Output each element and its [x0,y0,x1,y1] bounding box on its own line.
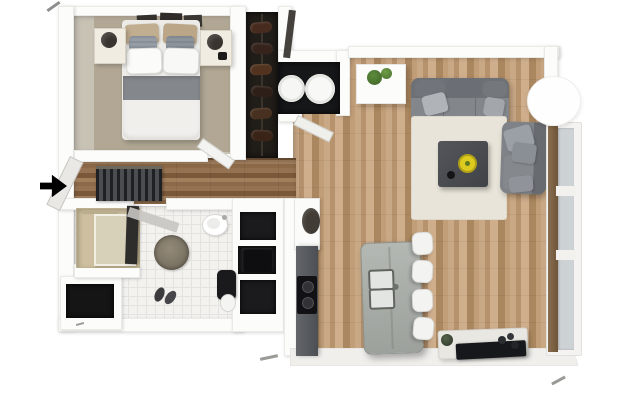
island-faucet [393,284,399,290]
bar-stool [412,289,434,313]
shoes-pair [250,107,273,120]
wall-closet-left [230,6,246,160]
console-gadget [511,341,519,349]
shoes-pair [250,63,273,75]
toilet-bowl [220,294,236,312]
nightstand-item [218,52,227,60]
shoes-pair [251,42,274,55]
chair-pillow [508,175,534,193]
sofa-back-cushion [447,79,481,97]
bar-stool [411,231,434,255]
washer-box [242,248,272,272]
kitchen-wall-basin [302,208,320,234]
window-mullion [556,186,576,196]
window-glass [558,128,574,350]
table-lamp [207,34,223,50]
bed-duvet [123,100,200,140]
wall-bedroom-hall [74,150,208,162]
basin-faucet [222,215,227,220]
washbasin-bowl [207,218,220,229]
render-tick [551,376,566,386]
wall-living-top [348,46,560,58]
round-bath-rug [154,235,189,270]
dryer-top [305,74,335,104]
cooktop-burner [302,281,314,293]
yellow-bowl [458,154,477,173]
plant [381,68,392,79]
shower-fixture-rail [82,210,118,214]
coffee-table [438,141,488,187]
bed-pillow-white [126,47,163,74]
bar-stool [411,259,433,283]
island-sink-basin [369,288,396,310]
render-tick [260,354,278,361]
chair-pillow [511,141,538,164]
window-wood-frame [548,126,558,352]
table-lamp [101,32,117,48]
sofa-back-cushion [483,81,507,97]
radiator [96,166,162,201]
console-gadget [507,333,514,340]
shoes-pair [251,85,274,98]
bar-stool [412,316,435,341]
bed-throw-band [123,76,200,102]
bed-pillow-white [163,47,200,74]
wall-niche-top [240,212,276,240]
cooktop-burner [302,297,314,309]
storage-niche-bottom-left [66,284,114,318]
paper-floor-lamp [527,76,581,126]
window-mullion [556,250,576,260]
black-dish [447,171,455,179]
wall-living-bottom [290,348,578,366]
wall-hall-bath-right [166,198,242,210]
plant [367,70,382,85]
bowl-content [465,161,470,166]
washer-top [278,75,305,102]
shoes-pair [251,129,274,141]
floorplan [0,0,640,415]
console-gadget [498,336,506,344]
wall-niche-bottom [240,280,276,314]
console-plant [441,334,453,346]
